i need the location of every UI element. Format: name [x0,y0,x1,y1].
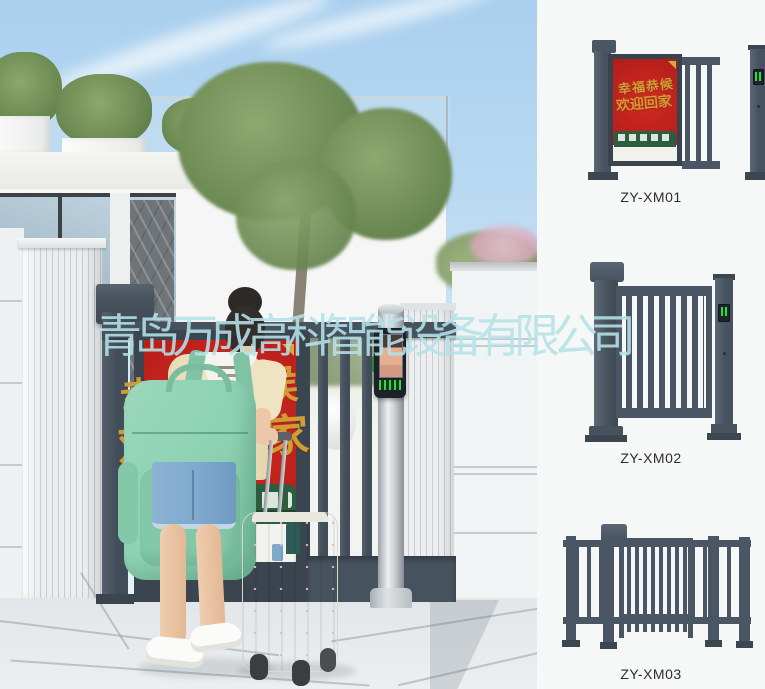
gate-motor-box [590,262,624,282]
fence-post [739,537,750,642]
denim-shorts [152,462,236,529]
fence-foot [705,640,722,647]
gate-foot [585,435,627,442]
pillar-cap [18,238,106,248]
train-windows [618,134,672,141]
fence-post [708,536,719,642]
gate-leaf-stile [688,538,693,638]
product-image-zy-xm02 [588,262,740,442]
keyhole [757,105,760,108]
product-label: ZY-XM01 [537,189,765,205]
gate-end-post [750,49,765,174]
fence-post [566,536,576,642]
gate-top-rail [616,286,712,296]
gate-foot [745,172,765,180]
shorts-seam [192,470,194,520]
suitcase-wheel [250,654,268,680]
wall-groove [0,382,24,384]
gate-top-rail [682,57,720,65]
olive-tree [236,160,356,270]
gate-bottom-rail [682,161,720,169]
product-card-zy-xm03[interactable]: ZY-XM03 [537,480,765,689]
wall-groove [0,546,24,548]
face-terminal-keypad [379,380,401,390]
gate-foot [707,433,741,440]
backpack-seam [132,432,248,434]
wall-groove [0,464,24,466]
blossom-shrub [470,226,537,266]
roof-hedge [56,74,152,146]
pole-cap [378,304,404,314]
fence-foot [736,641,753,648]
hand [258,428,278,445]
product-label: ZY-XM03 [537,666,765,682]
product-image-zy-xm01: 幸福恭候 欢迎回家 [592,39,742,181]
fence-post [603,538,614,644]
product-label: ZY-XM02 [537,450,765,466]
backpack-side-pocket [118,462,138,544]
gate-stile [706,286,712,418]
striped-pillar-left [22,246,102,602]
scene-photo: 幸福恭候 欢迎回家 [0,0,537,689]
pole-base [370,588,412,608]
product-card-zy-xm02[interactable]: ZY-XM02 [537,218,765,479]
wall-groove [452,338,537,340]
access-reader [753,69,764,85]
poster-snow [613,145,677,161]
gate-stile [616,286,622,418]
gate-foot [96,594,134,604]
wall-groove [452,345,537,347]
access-reader [718,304,730,322]
wall-groove [452,473,537,475]
gate-leaf-bars [627,544,687,632]
gate-post-round [594,280,618,430]
pillar-cap [400,303,456,310]
keyhole [723,352,726,355]
gate-bars [626,296,704,408]
wall-shadow [430,600,537,689]
suitcase-top-handle [252,512,328,522]
gate-bottom-rail [616,408,712,418]
roof-planter [0,116,50,154]
product-card-zy-xm01[interactable]: 幸福恭候 欢迎回家 ZY-XM01 [537,0,765,217]
gate-bars [685,65,715,161]
gate-foot [588,172,618,180]
face-terminal-screen [379,334,403,378]
suitcase-wheel [292,660,310,686]
fence-bars [575,547,605,617]
product-list: 幸福恭候 欢迎回家 ZY-XM01 [537,0,765,689]
wall-groove [452,532,537,534]
wall-groove [0,300,24,302]
gate-leaf-stile [619,538,624,638]
wall-coping [450,262,537,271]
fence-foot [600,642,617,649]
fence-foot [562,640,580,647]
suitcase-wheel [320,648,336,672]
wall-groove [452,466,537,468]
white-wall-right [452,266,537,602]
page: 幸福恭候 欢迎回家 [0,0,765,689]
leg-left [160,524,186,646]
product-image-zy-xm03 [563,522,755,654]
